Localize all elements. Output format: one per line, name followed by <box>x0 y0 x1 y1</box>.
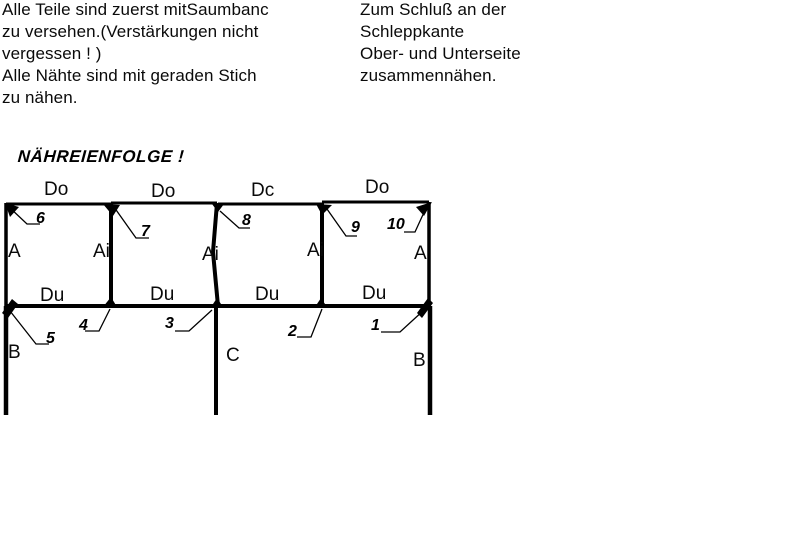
corner-letter-b-left: B <box>8 343 21 362</box>
side-label-ai-1: Ai <box>93 242 110 261</box>
leader-step-4 <box>85 309 110 331</box>
panel-label-dc: Dc <box>251 181 274 200</box>
step-number-4: 4 <box>79 318 88 334</box>
step-number-6: 6 <box>36 211 45 227</box>
seam-label-du-2: Du <box>150 285 174 304</box>
side-label-a-left: A <box>8 242 21 261</box>
leader-step-3 <box>175 310 212 331</box>
step-number-7: 7 <box>141 224 150 240</box>
step-number-2: 2 <box>288 324 297 340</box>
panel-label-do-1: Do <box>44 180 68 199</box>
step-number-10: 10 <box>387 217 405 233</box>
document-page: Alle Teile sind zuerst mitSaumbanc zu ve… <box>0 0 797 540</box>
corner-letter-c: C <box>226 346 240 365</box>
step-number-3: 3 <box>165 316 174 332</box>
side-label-ai-2: Ai <box>202 245 219 264</box>
step-number-8: 8 <box>242 213 251 229</box>
arrow-mark-bottom-seam23 <box>211 298 223 307</box>
step-number-5: 5 <box>46 331 55 347</box>
panel-label-do-4: Do <box>365 178 389 197</box>
panel-label-do-2: Do <box>151 182 175 201</box>
arrow-mark-bottom-seam34 <box>315 298 327 307</box>
seam-label-du-4: Du <box>362 284 386 303</box>
leader-step-2 <box>297 309 322 337</box>
side-label-a-right: A <box>414 244 427 263</box>
arrow-mark-bottom-seam12 <box>103 297 117 307</box>
side-label-ai-3: Ai <box>307 241 324 260</box>
panel-outlines <box>6 202 430 415</box>
step-number-1: 1 <box>371 318 380 334</box>
leader-step-5 <box>10 311 49 344</box>
corner-letter-b-right: B <box>413 351 426 370</box>
arrow-mark-top-seam23 <box>212 204 224 212</box>
seam-label-du-1: Du <box>40 286 64 305</box>
sewing-sequence-diagram <box>0 0 797 540</box>
step-number-9: 9 <box>351 220 360 236</box>
seam-label-du-3: Du <box>255 285 279 304</box>
arrow-mark-top-seam12 <box>103 204 120 216</box>
